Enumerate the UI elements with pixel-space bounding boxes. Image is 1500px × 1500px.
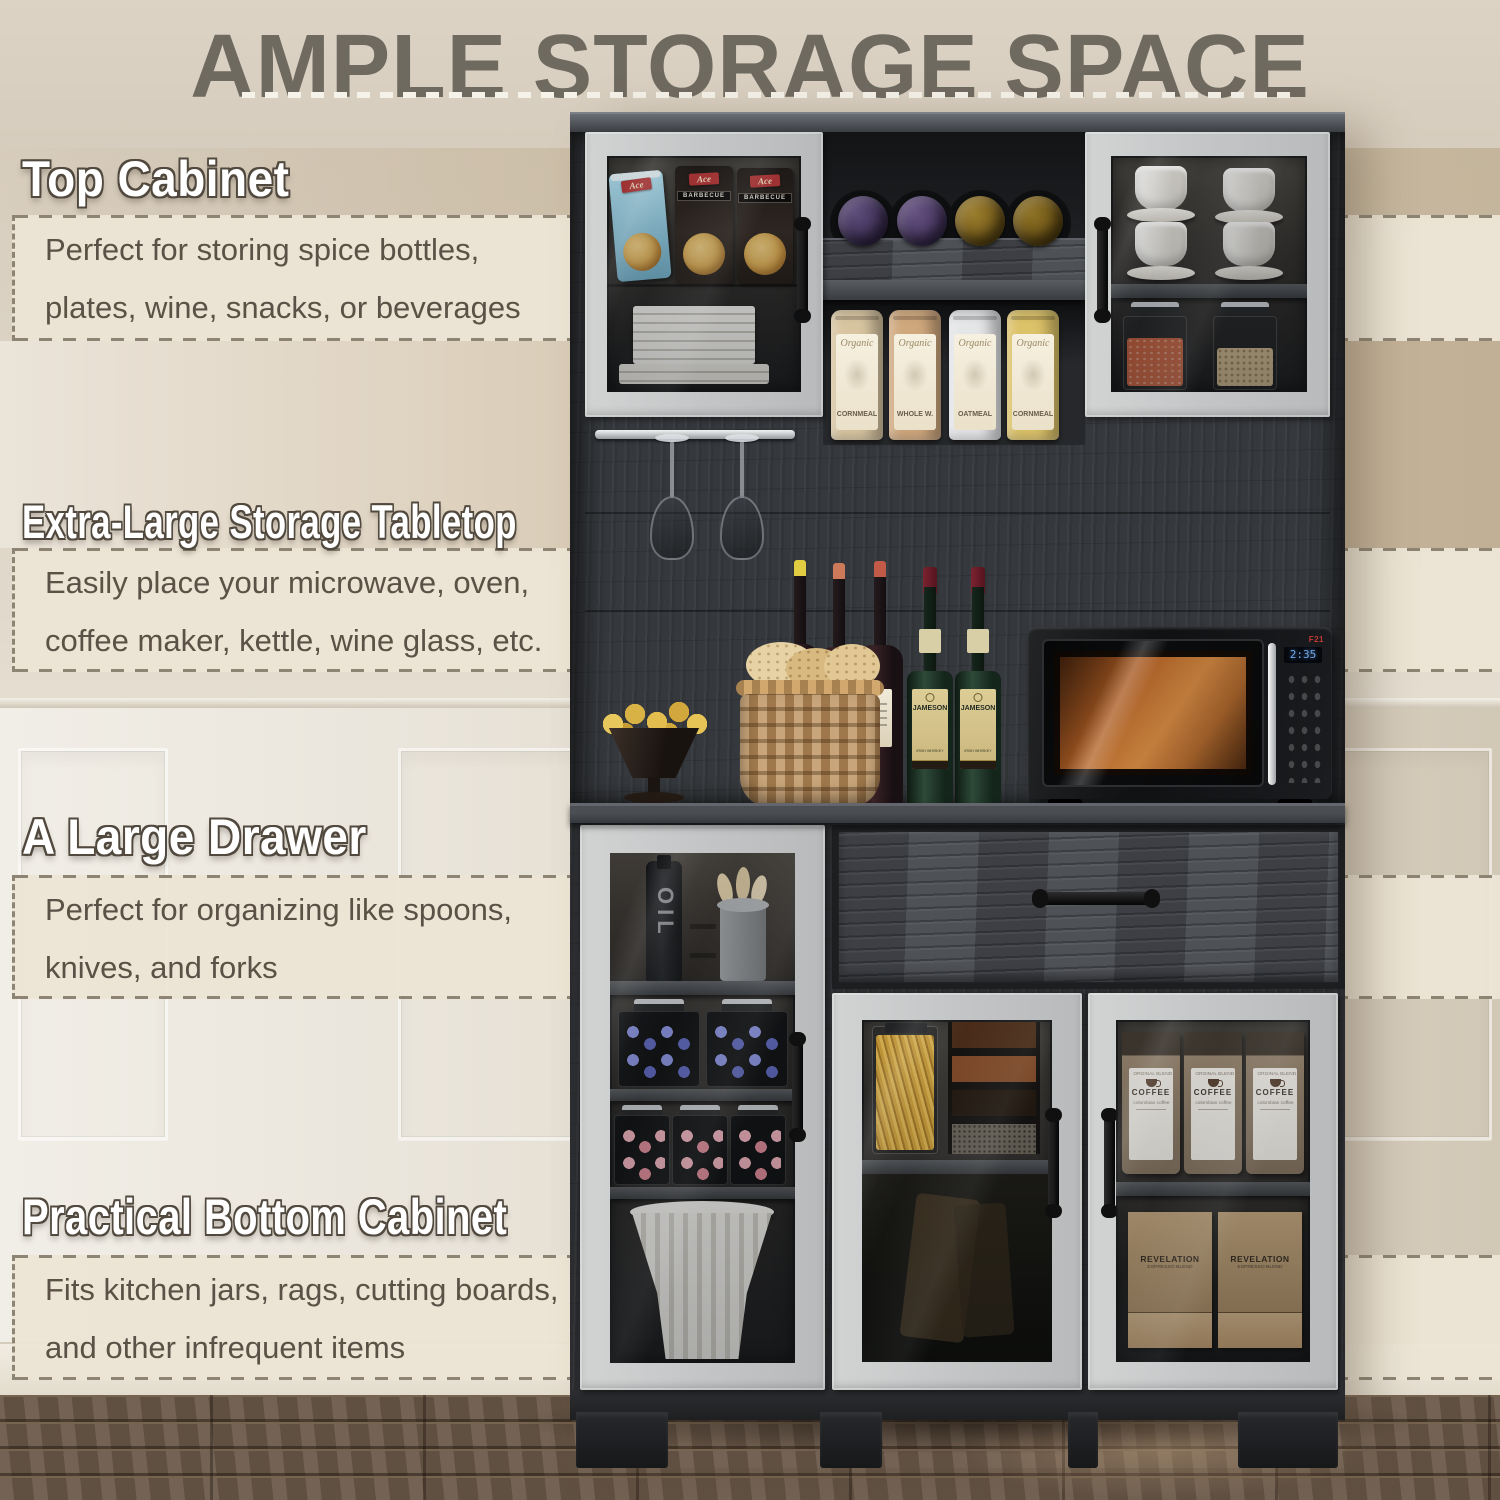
coffee-name: COFFEE xyxy=(1191,1088,1235,1097)
container-stack xyxy=(948,1022,1040,1154)
microwave-door xyxy=(1042,639,1264,787)
label-rule xyxy=(1198,1109,1228,1110)
drawer-front xyxy=(838,831,1339,983)
coffee-cup-icon xyxy=(1146,1079,1157,1087)
whiskey-bottle: JAMESON IRISH WHISKEY xyxy=(955,567,1001,807)
door-handle xyxy=(792,1037,803,1137)
wine-glass xyxy=(648,434,696,564)
cabinet-foot xyxy=(576,1412,668,1468)
door-handle xyxy=(1097,222,1108,318)
interior-seam xyxy=(607,284,801,287)
microwave-display: 2:35 xyxy=(1284,647,1322,663)
wine-rack-cubby xyxy=(823,132,1085,280)
jar-body xyxy=(614,1115,670,1185)
coffee-origin: colombian coffee xyxy=(1257,1101,1292,1106)
countertop xyxy=(570,803,1345,823)
label-rule xyxy=(1260,1109,1290,1110)
back-panel-seam xyxy=(585,512,1330,514)
chip-brand: Ace xyxy=(689,172,720,186)
canister-name: CORNMEAL xyxy=(836,411,878,418)
wine-bottle-end xyxy=(1013,196,1063,246)
canister-art xyxy=(844,358,870,392)
door-handle xyxy=(1048,1113,1059,1213)
canister-script: Organic xyxy=(1012,338,1054,349)
oil-bottle-cap xyxy=(657,855,671,869)
chip-bag-blue: Ace xyxy=(608,170,671,282)
saucer xyxy=(1127,208,1195,222)
bowl-foot xyxy=(624,792,684,803)
jar-body xyxy=(618,1011,700,1087)
chip-bag-dark: Ace BARBECUE xyxy=(737,168,793,284)
candy-jar-blue xyxy=(706,999,788,1087)
top-left-door-glass: Ace Ace BARBECUE Ace BARBECUE xyxy=(607,156,801,392)
oil-bottle: OIL xyxy=(646,861,682,981)
canister-name: WHOLE W. xyxy=(894,411,936,418)
whiskey-type: IRISH WHISKEY xyxy=(914,748,946,753)
coffee-origin: colombian coffee xyxy=(1133,1101,1168,1106)
canister-label: Organic WHOLE W. xyxy=(894,334,936,430)
cabinet-top-board xyxy=(570,112,1345,132)
whiskey-brand: JAMESON xyxy=(912,705,948,712)
grain-container xyxy=(952,1022,1036,1048)
box-band xyxy=(1128,1312,1212,1348)
chip-bag-dark: Ace BARBECUE xyxy=(675,166,733,284)
candy-jar-pink xyxy=(614,1105,670,1185)
cup xyxy=(1223,168,1275,212)
chip-flavor: BARBECUE xyxy=(738,193,792,203)
candy-jar-pink xyxy=(730,1105,786,1185)
candy-jar-pink xyxy=(672,1105,728,1185)
coffee-bag: ORGINAL BLEND COFFEE colombian coffee xyxy=(1246,1032,1304,1174)
coffee-cup-icon xyxy=(1208,1079,1219,1087)
coffee-bag-label: ORGINAL BLEND COFFEE colombian coffee xyxy=(1129,1068,1173,1160)
bowl-stem xyxy=(648,777,660,793)
drawer-handle xyxy=(1037,892,1155,905)
cup xyxy=(1135,166,1187,210)
coffee-blend: ORGINAL BLEND xyxy=(1133,1072,1168,1077)
cup xyxy=(1223,222,1275,266)
bread-basket xyxy=(736,640,884,807)
cup xyxy=(1135,222,1187,266)
top-right-door-glass xyxy=(1111,156,1307,392)
canister: Organic CORNMEAL xyxy=(831,310,883,440)
whiskey-label: JAMESON IRISH WHISKEY xyxy=(960,689,996,769)
bottom-right-glass-door: ORGINAL BLEND COFFEE colombian coffee OR… xyxy=(1088,993,1338,1390)
canister-cubby: Organic CORNMEAL Organic WHOLE W. Organi… xyxy=(823,300,1085,445)
wine-glass xyxy=(718,434,766,564)
title-underline xyxy=(242,92,1292,98)
callout-heading-bottom-cabinet: Practical Bottom Cabinet xyxy=(22,1188,507,1246)
bowl-stack xyxy=(630,1201,774,1359)
whiskey-label: JAMESON IRISH WHISKEY xyxy=(912,689,948,769)
canister-art xyxy=(902,358,928,392)
grain-container xyxy=(952,1124,1036,1154)
plate-stack xyxy=(633,306,755,364)
whiskey-bottle: JAMESON IRISH WHISKEY xyxy=(907,567,953,807)
cabinet-foot xyxy=(1238,1412,1338,1468)
jar-lid xyxy=(885,1023,927,1033)
coffee-name: COFFEE xyxy=(1129,1088,1173,1097)
pasta-jar xyxy=(872,1026,938,1154)
grain-container xyxy=(952,1056,1036,1082)
callout-heading-drawer: A Large Drawer xyxy=(22,808,367,866)
bowl-stack-body xyxy=(632,1213,772,1359)
door-handle xyxy=(1104,1113,1115,1213)
door-shelf xyxy=(1116,1182,1310,1196)
coffee-blend: ORGINAL BLEND xyxy=(1257,1072,1292,1077)
coffee-blend: ORGINAL BLEND xyxy=(1195,1072,1230,1077)
canister-script: Organic xyxy=(894,338,936,349)
chips-photo xyxy=(744,233,786,275)
espresso-box: REVELATION ESPRESSO BLEND xyxy=(1128,1212,1212,1348)
chips-photo xyxy=(683,233,725,275)
callout-heading-top-cabinet: Top Cabinet xyxy=(22,150,289,208)
canister-name: CORNMEAL xyxy=(1012,411,1054,418)
candy-jar-blue xyxy=(618,999,700,1087)
cutting-board xyxy=(953,1202,1014,1337)
red-lentils xyxy=(1127,338,1183,386)
plate-stack-wide xyxy=(619,364,769,384)
jar-body xyxy=(672,1115,728,1185)
saucer xyxy=(1127,266,1195,280)
whiskey-type: IRISH WHISKEY xyxy=(962,748,994,753)
box-sub: ESPRESSO BLEND xyxy=(1132,1264,1208,1269)
canister-label: Organic OATMEAL xyxy=(954,334,996,430)
coffee-bag-label: ORGINAL BLEND COFFEE colombian coffee xyxy=(1191,1068,1235,1160)
canister-art xyxy=(962,358,988,392)
bowl-body xyxy=(605,728,703,778)
basket-body xyxy=(740,694,880,807)
microwave-control-panel: F21 2:35 xyxy=(1280,635,1326,793)
chips-photo xyxy=(622,231,663,272)
coffee-bag: ORGINAL BLEND COFFEE colombian coffee xyxy=(1184,1032,1242,1174)
lower-compartment xyxy=(862,1174,1052,1362)
crest-icon xyxy=(926,693,935,702)
crock-rim xyxy=(717,898,769,912)
coffee-bag: ORGINAL BLEND COFFEE colombian coffee xyxy=(1122,1032,1180,1174)
canister: Organic OATMEAL xyxy=(949,310,1001,440)
coffee-origin: colombian coffee xyxy=(1195,1101,1230,1106)
bottom-left-glass-door: OIL xyxy=(580,825,825,1390)
chip-brand: Ace xyxy=(621,177,652,193)
grain-jar-lentils xyxy=(1123,302,1187,390)
canister: Organic CORNMEAL xyxy=(1007,310,1059,440)
espresso-box: REVELATION ESPRESSO BLEND xyxy=(1218,1212,1302,1348)
microwave: F21 2:35 xyxy=(1028,627,1332,807)
top-left-glass-door: Ace Ace BARBECUE Ace BARBECUE xyxy=(585,132,823,417)
bottom-right-door-glass: ORGINAL BLEND COFFEE colombian coffee OR… xyxy=(1116,1020,1310,1362)
bottom-left-door-glass: OIL xyxy=(610,853,795,1363)
snack-bowl xyxy=(595,700,713,807)
pepper-grinder xyxy=(690,900,716,981)
wine-bottle-end xyxy=(897,196,947,246)
cup-stack xyxy=(1215,168,1283,284)
microwave-buttons xyxy=(1285,671,1322,783)
callout-heading-tabletop: Extra-Large Storage Tabletop xyxy=(22,494,517,549)
box-band xyxy=(1218,1312,1302,1348)
wine-bottle-end xyxy=(838,196,888,246)
coffee-cup-icon xyxy=(1270,1079,1281,1087)
crest-icon xyxy=(974,693,983,702)
microwave-body: F21 2:35 xyxy=(1028,627,1332,799)
whiskey-brand: JAMESON xyxy=(960,705,996,712)
coffee-name: COFFEE xyxy=(1253,1088,1297,1097)
box-name: REVELATION xyxy=(1128,1254,1212,1264)
door-shelf xyxy=(862,1160,1052,1174)
canister-label: Organic CORNMEAL xyxy=(1012,334,1054,430)
wine-bottle-end xyxy=(955,196,1005,246)
top-right-glass-door xyxy=(1085,132,1330,417)
label-band xyxy=(912,760,948,769)
cabinet-foot xyxy=(1068,1412,1098,1468)
canister-script: Organic xyxy=(954,338,996,349)
page-title: AMPLE STORAGE SPACE xyxy=(8,16,1493,119)
jar-body xyxy=(730,1115,786,1185)
product-infographic: AMPLE STORAGE SPACE Top Cabinet Perfect … xyxy=(0,0,1500,1500)
door-shelf xyxy=(610,1089,795,1101)
door-handle xyxy=(797,222,808,318)
pasta xyxy=(876,1035,934,1150)
chip-brand: Ace xyxy=(750,174,781,188)
microwave-brand: F21 xyxy=(1309,635,1324,644)
box-name: REVELATION xyxy=(1218,1254,1302,1264)
grains xyxy=(1217,348,1273,386)
grain-container xyxy=(952,1090,1036,1116)
jar-body xyxy=(706,1011,788,1087)
canister-name: OATMEAL xyxy=(954,411,996,418)
coffee-bag-label: ORGINAL BLEND COFFEE colombian coffee xyxy=(1253,1068,1297,1160)
cup-stack xyxy=(1127,166,1195,284)
label-rule xyxy=(1136,1109,1166,1110)
microwave-handle xyxy=(1268,643,1276,785)
jar-body xyxy=(1213,316,1277,390)
canister-label: Organic CORNMEAL xyxy=(836,334,878,430)
door-shelf xyxy=(610,1187,795,1199)
large-drawer xyxy=(832,825,1345,989)
oil-label: OIL xyxy=(652,887,678,939)
jar-body xyxy=(1123,316,1187,390)
chip-flavor: BARBECUE xyxy=(677,191,731,201)
bottom-middle-door-glass xyxy=(862,1020,1052,1362)
door-reflection xyxy=(1044,641,1262,785)
kick-board xyxy=(570,1390,1345,1420)
bottom-middle-glass-door xyxy=(832,993,1082,1390)
canister-script: Organic xyxy=(836,338,878,349)
canister: Organic WHOLE W. xyxy=(889,310,941,440)
door-shelf xyxy=(610,981,795,995)
hutch-middle-shelf xyxy=(823,280,1085,300)
box-sub: ESPRESSO BLEND xyxy=(1222,1264,1298,1269)
kitchen-hutch-cabinet: Organic CORNMEAL Organic WHOLE W. Organi… xyxy=(570,112,1345,1468)
utensil-crock xyxy=(720,905,766,981)
canister-art xyxy=(1020,358,1046,392)
door-shelf xyxy=(1111,284,1307,298)
saucer xyxy=(1215,266,1283,280)
label-band xyxy=(960,760,996,769)
grain-jar-oats xyxy=(1213,302,1277,390)
cabinet-foot xyxy=(820,1412,882,1468)
